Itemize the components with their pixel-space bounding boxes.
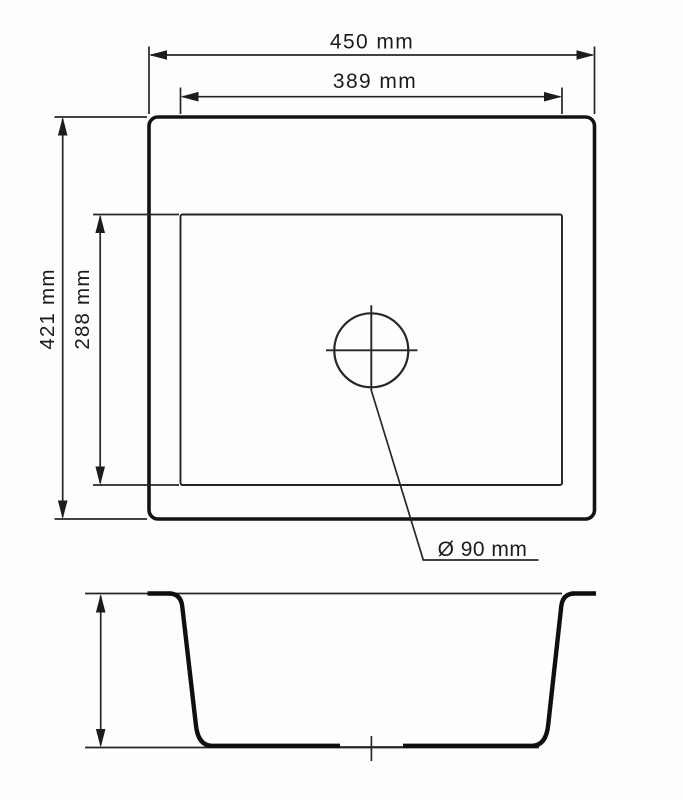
svg-text:389 mm: 389 mm (333, 70, 417, 93)
svg-text:Ø 90 mm: Ø 90 mm (438, 538, 528, 561)
svg-text:450 mm: 450 mm (330, 31, 414, 54)
svg-text:421 mm: 421 mm (36, 268, 59, 349)
svg-text:288 mm: 288 mm (71, 268, 94, 349)
